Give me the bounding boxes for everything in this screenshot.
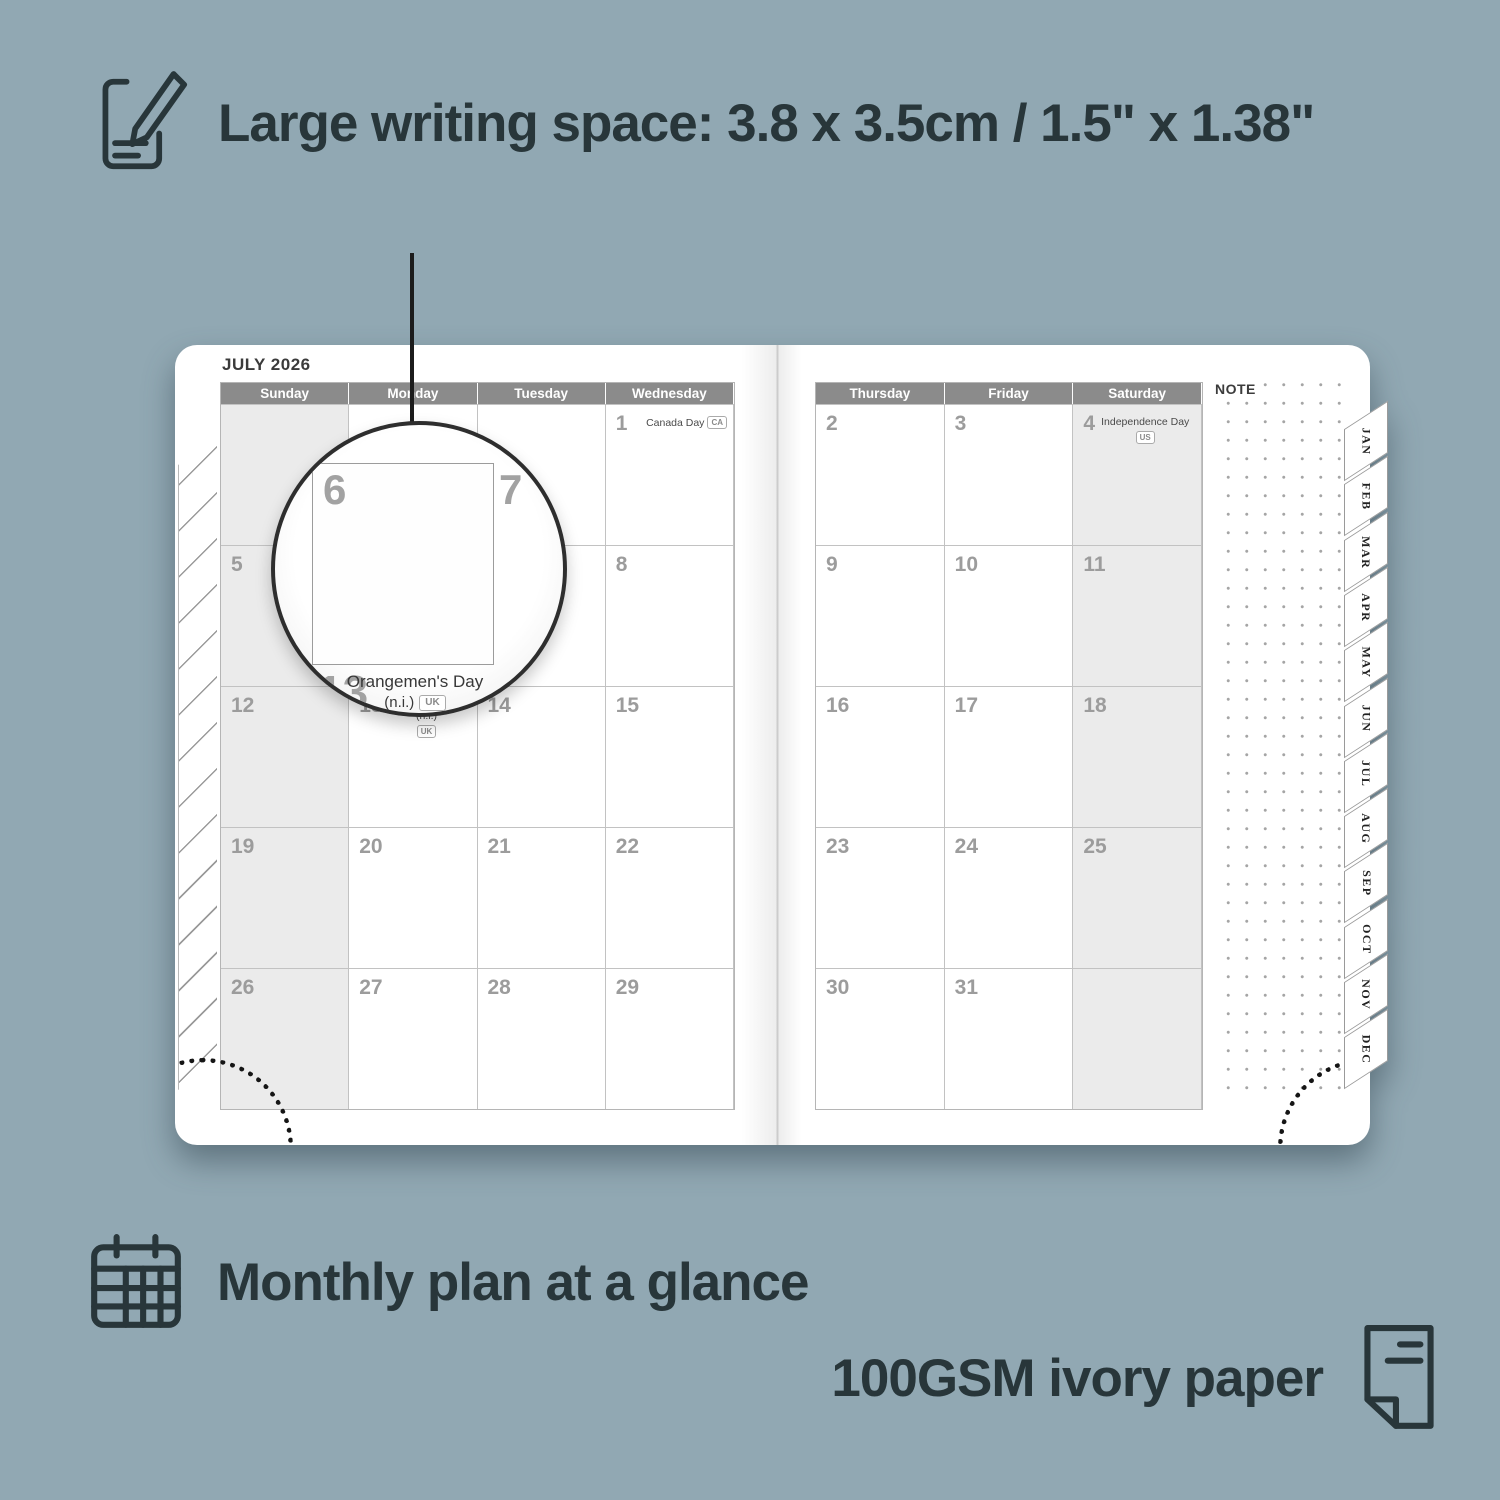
day-cell-3: 3 bbox=[945, 404, 1074, 545]
month-tab-label: SEP bbox=[1358, 870, 1373, 897]
date-number: 2 bbox=[826, 413, 838, 434]
month-tab-label: NOV bbox=[1358, 978, 1373, 1009]
month-tab-label: APR bbox=[1358, 592, 1373, 621]
day-cell-14: 14 bbox=[478, 686, 606, 827]
date-number: 16 bbox=[826, 695, 849, 716]
day-cell-16: 16 bbox=[816, 686, 945, 827]
magnified-country-badge: UK bbox=[419, 695, 445, 711]
date-number: 30 bbox=[826, 977, 849, 998]
day-cell-27: 27 bbox=[349, 968, 477, 1109]
calendar-grid-icon bbox=[85, 1231, 187, 1333]
notebook-pencil-icon bbox=[92, 70, 188, 176]
month-title: JULY 2026 bbox=[222, 355, 311, 375]
day-cell-28: 28 bbox=[478, 968, 606, 1109]
holiday-entry: Independence DayUS bbox=[1095, 416, 1195, 444]
day-cell-8: 8 bbox=[606, 545, 734, 686]
day-cell-15: 15 bbox=[606, 686, 734, 827]
date-number: 4 bbox=[1083, 413, 1095, 434]
date-number: 10 bbox=[955, 554, 978, 575]
date-number: 31 bbox=[955, 977, 978, 998]
page-spine bbox=[776, 345, 779, 1145]
date-number: 27 bbox=[359, 977, 382, 998]
day-cell-30: 30 bbox=[816, 968, 945, 1109]
date-number: 22 bbox=[616, 836, 639, 857]
magnified-day-7: 7 bbox=[499, 469, 522, 511]
magnified-holiday-suffix: (n.i.) bbox=[384, 694, 414, 711]
date-number: 26 bbox=[231, 977, 254, 998]
magnified-holiday: Orangemen's Day (n.i.) UK bbox=[335, 672, 495, 711]
magnifier-circle: 6 7 13 Orangemen's Day (n.i.) UK bbox=[271, 421, 567, 717]
feature-writing-space: Large writing space: 3.8 x 3.5cm / 1.5" … bbox=[92, 70, 1314, 176]
month-tab-label: AUG bbox=[1358, 813, 1373, 844]
day-cell-19: 19 bbox=[221, 827, 349, 968]
country-badge: US bbox=[1136, 431, 1155, 444]
day-cell-29: 29 bbox=[606, 968, 734, 1109]
day-cell-10: 10 bbox=[945, 545, 1074, 686]
magnifier-pointer-line bbox=[410, 253, 414, 425]
date-number: 3 bbox=[955, 413, 967, 434]
date-number: 17 bbox=[955, 695, 978, 716]
month-tab-label: FEB bbox=[1359, 482, 1374, 510]
magnified-day-6: 6 bbox=[323, 469, 346, 511]
day-cell-20: 20 bbox=[349, 827, 477, 968]
date-number: 12 bbox=[231, 695, 254, 716]
day-header-tuesday: Tuesday bbox=[478, 383, 606, 404]
month-tab-label: DEC bbox=[1359, 1034, 1374, 1064]
page-edge-hatching bbox=[178, 440, 217, 1090]
day-cell-1: 1Canada DayCA bbox=[606, 404, 734, 545]
holiday-name: Independence Day bbox=[1101, 416, 1189, 428]
date-number: 23 bbox=[826, 836, 849, 857]
note-dot-grid: NOTE bbox=[1215, 382, 1347, 1100]
country-badge: UK bbox=[417, 725, 437, 738]
day-cell-17: 17 bbox=[945, 686, 1074, 827]
day-header-friday: Friday bbox=[945, 383, 1074, 404]
date-number: 5 bbox=[231, 554, 243, 575]
day-cell-22: 22 bbox=[606, 827, 734, 968]
date-number: 19 bbox=[231, 836, 254, 857]
day-header-thursday: Thursday bbox=[816, 383, 945, 404]
date-number: 21 bbox=[488, 836, 511, 857]
day-cell-empty bbox=[1073, 968, 1202, 1109]
date-number: 8 bbox=[616, 554, 628, 575]
day-cell-31: 31 bbox=[945, 968, 1074, 1109]
date-number: 28 bbox=[488, 977, 511, 998]
feature-monthly-plan: Monthly plan at a glance bbox=[85, 1232, 808, 1332]
day-cell-9: 9 bbox=[816, 545, 945, 686]
writing-space-label: Large writing space: 3.8 x 3.5cm / 1.5" … bbox=[218, 93, 1314, 154]
monthly-plan-label: Monthly plan at a glance bbox=[217, 1252, 808, 1313]
day-cell-18: 18 bbox=[1073, 686, 1202, 827]
date-number: 18 bbox=[1083, 695, 1106, 716]
date-number: 11 bbox=[1083, 554, 1105, 575]
feature-paper: 100GSM ivory paper bbox=[831, 1322, 1445, 1434]
day-header-wednesday: Wednesday bbox=[606, 383, 734, 404]
day-cell-21: 21 bbox=[478, 827, 606, 968]
country-badge: CA bbox=[707, 416, 727, 429]
date-number: 20 bbox=[359, 836, 382, 857]
date-number: 15 bbox=[616, 695, 639, 716]
day-cell-2: 2 bbox=[816, 404, 945, 545]
date-number: 24 bbox=[955, 836, 978, 857]
month-tabs: JANFEBMARAPRMAYJUNJULAUGSEPOCTNOVDEC bbox=[1344, 345, 1392, 1145]
date-number: 29 bbox=[616, 977, 639, 998]
day-cell-25: 25 bbox=[1073, 827, 1202, 968]
day-cell-4: 4Independence DayUS bbox=[1073, 404, 1202, 545]
holiday-name: Canada Day bbox=[646, 417, 704, 429]
month-tab-label: MAY bbox=[1359, 646, 1374, 678]
day-cell-11: 11 bbox=[1073, 545, 1202, 686]
planner-right-page: ThursdayFridaySaturday234Independence Da… bbox=[778, 345, 1370, 1145]
date-number: 1 bbox=[616, 413, 628, 434]
magnified-holiday-name: Orangemen's Day bbox=[335, 672, 495, 692]
holiday-entry: Canada DayCA bbox=[646, 416, 727, 429]
day-header-sunday: Sunday bbox=[221, 383, 349, 404]
day-cell-24: 24 bbox=[945, 827, 1074, 968]
calendar-right-table: ThursdayFridaySaturday234Independence Da… bbox=[815, 382, 1203, 1110]
paper-icon bbox=[1353, 1322, 1445, 1434]
month-tab-label: MAR bbox=[1358, 535, 1373, 568]
month-tab-label: JUL bbox=[1358, 759, 1373, 786]
month-tab-label: JAN bbox=[1359, 427, 1374, 455]
paper-label: 100GSM ivory paper bbox=[831, 1348, 1323, 1409]
day-cell-23: 23 bbox=[816, 827, 945, 968]
day-header-saturday: Saturday bbox=[1073, 383, 1202, 404]
month-tab-label: OCT bbox=[1358, 923, 1373, 954]
date-number: 25 bbox=[1083, 836, 1106, 857]
note-label: NOTE bbox=[1215, 381, 1260, 397]
month-tab-label: JUN bbox=[1359, 704, 1374, 732]
date-number: 9 bbox=[826, 554, 838, 575]
